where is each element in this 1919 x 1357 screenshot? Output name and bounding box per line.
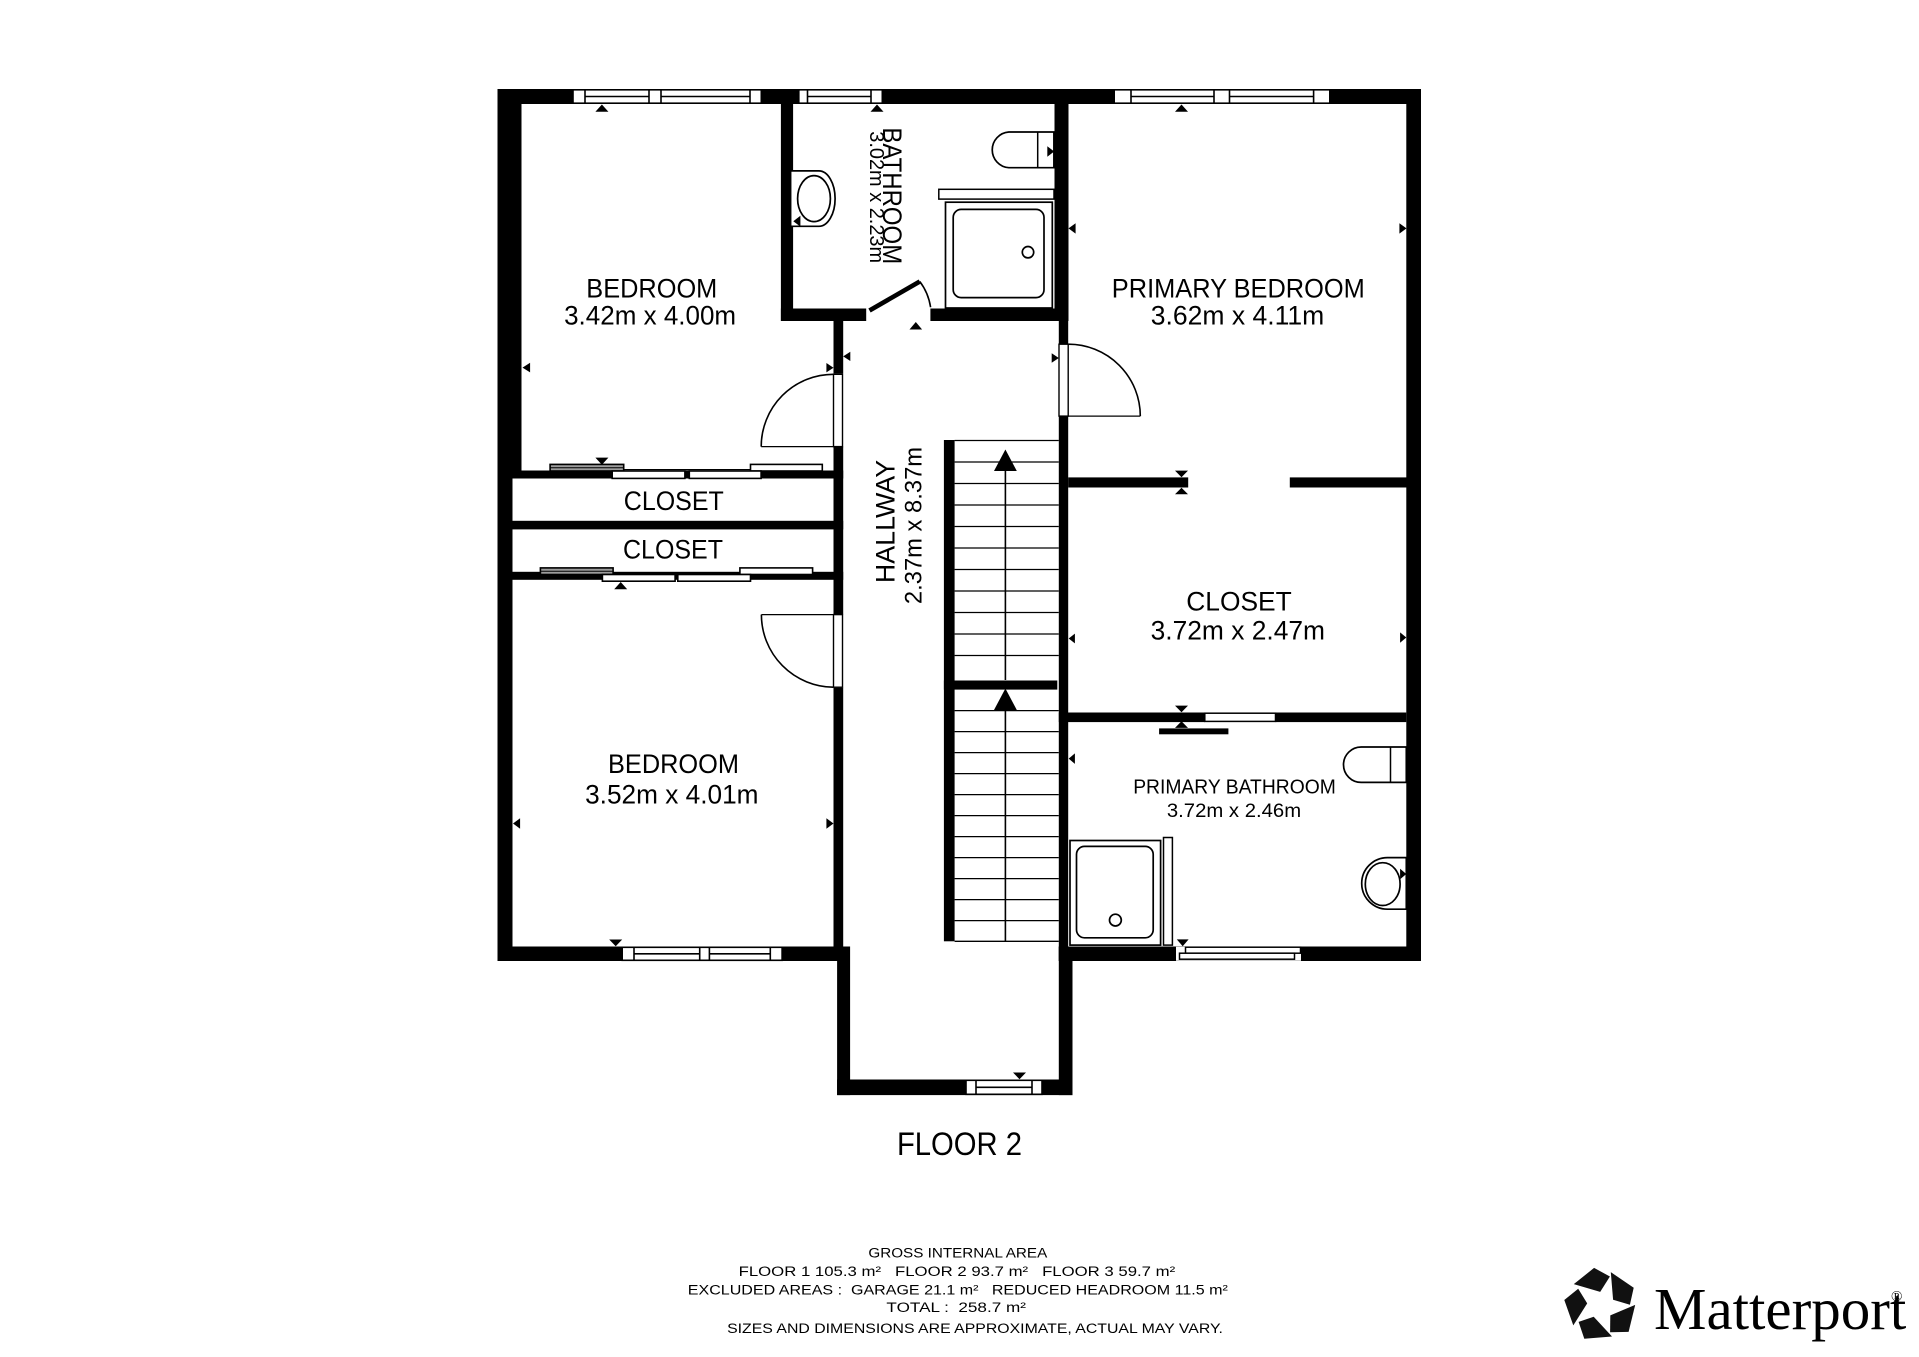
svg-text:SIZES AND DIMENSIONS ARE APPRO: SIZES AND DIMENSIONS ARE APPROXIMATE, AC…: [727, 1321, 1223, 1336]
svg-text:HALLWAY: HALLWAY: [871, 460, 901, 583]
svg-text:2.37m x 8.37m: 2.37m x 8.37m: [901, 447, 928, 604]
svg-text:Matterport: Matterport: [1654, 1276, 1907, 1342]
svg-text:3.02m x 2.23m: 3.02m x 2.23m: [865, 131, 887, 263]
svg-text:BEDROOM: BEDROOM: [586, 274, 717, 304]
svg-text:®: ®: [1891, 1289, 1902, 1305]
svg-text:CLOSET: CLOSET: [1186, 587, 1292, 617]
svg-text:GROSS INTERNAL AREA: GROSS INTERNAL AREA: [868, 1245, 1047, 1260]
svg-text:CLOSET: CLOSET: [623, 535, 723, 565]
svg-text:3.72m x 2.47m: 3.72m x 2.47m: [1151, 616, 1325, 646]
svg-text:PRIMARY BEDROOM: PRIMARY BEDROOM: [1112, 274, 1365, 304]
svg-text:3.42m x 4.00m: 3.42m x 4.00m: [564, 301, 736, 331]
svg-text:PRIMARY BATHROOM: PRIMARY BATHROOM: [1133, 776, 1336, 798]
svg-text:FLOOR 2: FLOOR 2: [897, 1126, 1022, 1162]
svg-text:3.62m x 4.11m: 3.62m x 4.11m: [1151, 301, 1325, 331]
svg-text:FLOOR 1 105.3 m² FLOOR 2 93.: FLOOR 1 105.3 m² FLOOR 2 93.7 m² FLOOR 3…: [739, 1264, 1176, 1279]
svg-text:TOTAL : 258.7 m²: TOTAL : 258.7 m²: [886, 1300, 1026, 1315]
svg-text:CLOSET: CLOSET: [624, 486, 724, 516]
svg-text:BEDROOM: BEDROOM: [608, 749, 739, 779]
svg-text:3.72m x 2.46m: 3.72m x 2.46m: [1167, 801, 1301, 822]
svg-text:EXCLUDED AREAS : GARAGE 21.1: EXCLUDED AREAS : GARAGE 21.1 m² REDUCED …: [688, 1283, 1229, 1298]
svg-text:3.52m x 4.01m: 3.52m x 4.01m: [585, 780, 758, 810]
